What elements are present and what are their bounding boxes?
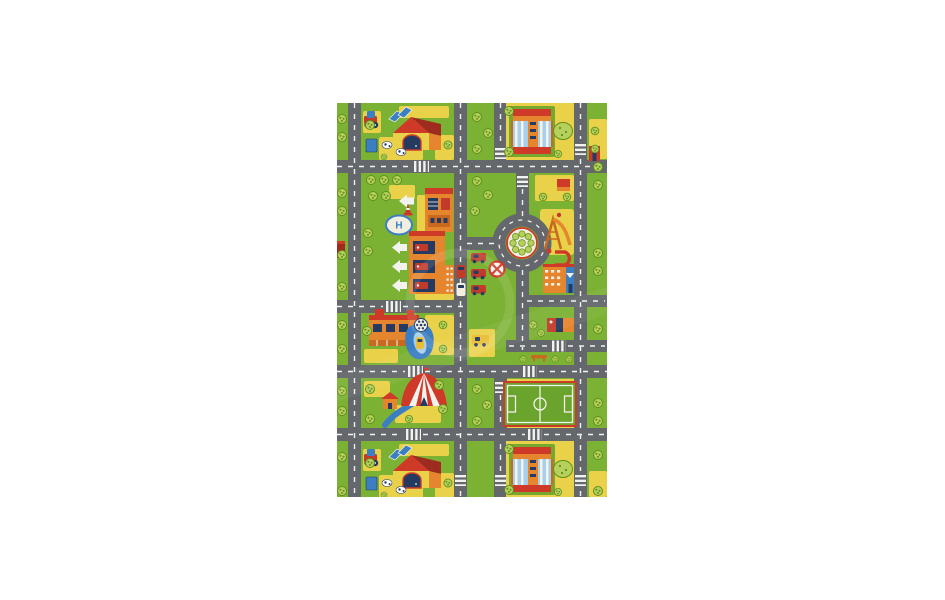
school-bottom <box>505 441 575 497</box>
play-rug-graphic: H <box>337 103 607 497</box>
product-image-canvas: H <box>0 0 945 600</box>
kiosk-top-right-icon <box>557 179 570 191</box>
car-on-road-red <box>457 265 466 278</box>
roundabout-flower-island <box>507 228 537 258</box>
helipad-h-label: H <box>395 221 402 232</box>
ball-icon <box>547 249 552 254</box>
shops-building <box>543 264 574 293</box>
hospital-building <box>425 188 453 232</box>
play-rug: H <box>337 103 607 497</box>
soccer-field <box>504 382 576 426</box>
helipad: H <box>386 216 412 235</box>
car-on-road-white <box>457 283 466 296</box>
school-top <box>505 103 575 160</box>
farm-house-top <box>363 106 454 160</box>
farm-house-bottom <box>363 444 454 497</box>
